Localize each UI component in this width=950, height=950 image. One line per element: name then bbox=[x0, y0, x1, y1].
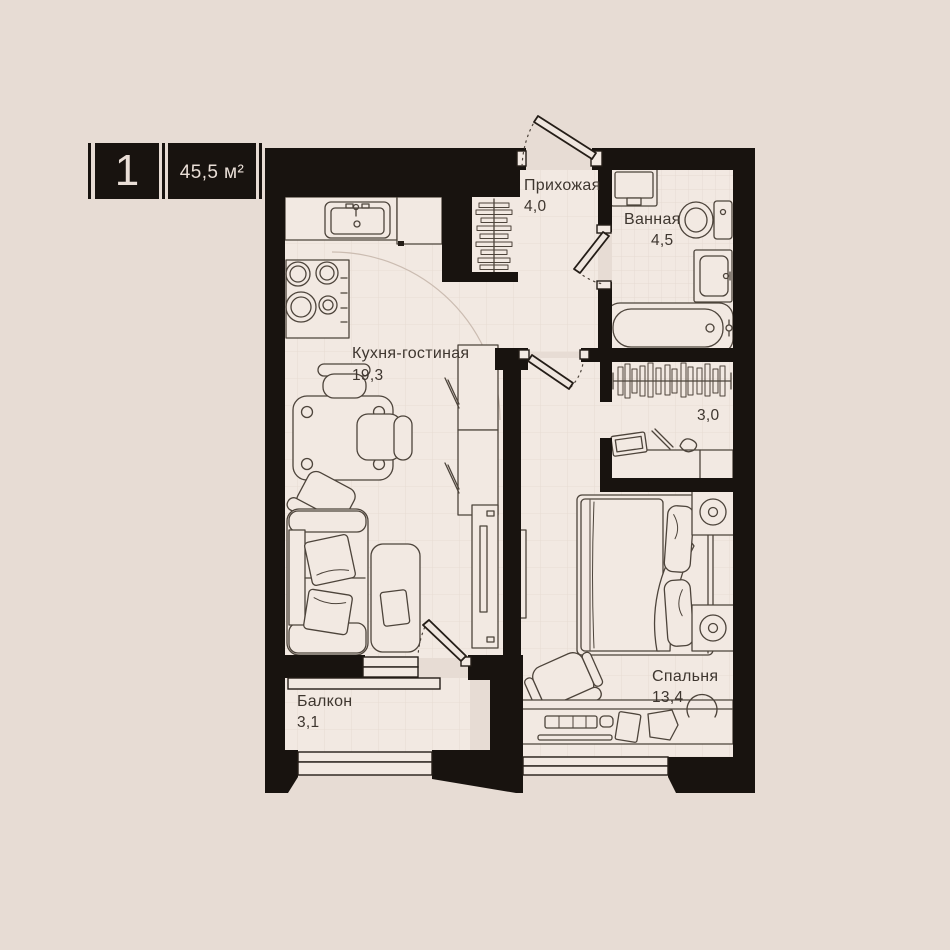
bathroom-sink bbox=[694, 250, 732, 302]
floor-coat-niche bbox=[472, 197, 518, 275]
toilet bbox=[679, 201, 732, 239]
unit-area: 45,5 м² bbox=[180, 162, 244, 183]
room-area-balcony: 3,1 bbox=[297, 714, 319, 731]
entry-door bbox=[534, 116, 596, 159]
room-label-balcony: Балкон bbox=[297, 693, 352, 710]
coffee-table bbox=[371, 544, 420, 652]
room-area-kitchen-living: 19,3 bbox=[352, 367, 383, 384]
room-label-bathroom: Ванная bbox=[624, 211, 681, 228]
room-label-hallway: Прихожая bbox=[524, 177, 601, 194]
badge-divider bbox=[162, 143, 165, 199]
dining-chair-right bbox=[357, 414, 412, 460]
fridge-handle bbox=[398, 241, 404, 246]
nightstand-bottom bbox=[692, 605, 734, 651]
notepad bbox=[615, 711, 641, 742]
mouse bbox=[600, 716, 613, 727]
laptop bbox=[611, 432, 647, 457]
living-balcony-window bbox=[363, 657, 418, 667]
washing-machine bbox=[611, 168, 657, 206]
stove bbox=[286, 260, 349, 338]
nightstand-top bbox=[692, 489, 734, 535]
room-area-bathroom: 4,5 bbox=[651, 232, 673, 249]
tv-living bbox=[480, 526, 487, 612]
living-balcony-window bbox=[363, 667, 418, 677]
balcony-sill bbox=[288, 678, 440, 689]
bedroom-window bbox=[523, 757, 668, 766]
sofa bbox=[287, 509, 368, 655]
kitchen-sink bbox=[325, 202, 390, 238]
unit-badge: 1 45,5 м² bbox=[88, 143, 262, 199]
floor-plan: Прихожая 4,0 Ванная 4,5 Кухня-гостиная 1… bbox=[0, 0, 950, 950]
balcony-window bbox=[298, 752, 432, 762]
sofa-pillow bbox=[304, 534, 356, 586]
pillow bbox=[664, 505, 695, 573]
unit-number: 1 bbox=[115, 146, 139, 195]
desk-tray bbox=[538, 735, 612, 740]
room-label-bedroom: Спальня bbox=[652, 668, 718, 685]
room-area-wardrobe: 3,0 bbox=[697, 407, 720, 424]
room-area-bedroom: 13,4 bbox=[652, 689, 683, 706]
desk bbox=[521, 695, 733, 744]
bathtub bbox=[606, 303, 733, 353]
badge-divider bbox=[259, 143, 262, 199]
room-label-kitchen-living: Кухня-гостиная bbox=[352, 345, 469, 362]
room-area-hallway: 4,0 bbox=[524, 198, 547, 215]
sofa-pillow bbox=[303, 589, 353, 635]
keyboard bbox=[545, 716, 597, 728]
bedroom-window bbox=[523, 766, 668, 775]
balcony-window bbox=[298, 762, 432, 775]
badge-divider bbox=[88, 143, 91, 199]
pillow bbox=[664, 579, 695, 647]
